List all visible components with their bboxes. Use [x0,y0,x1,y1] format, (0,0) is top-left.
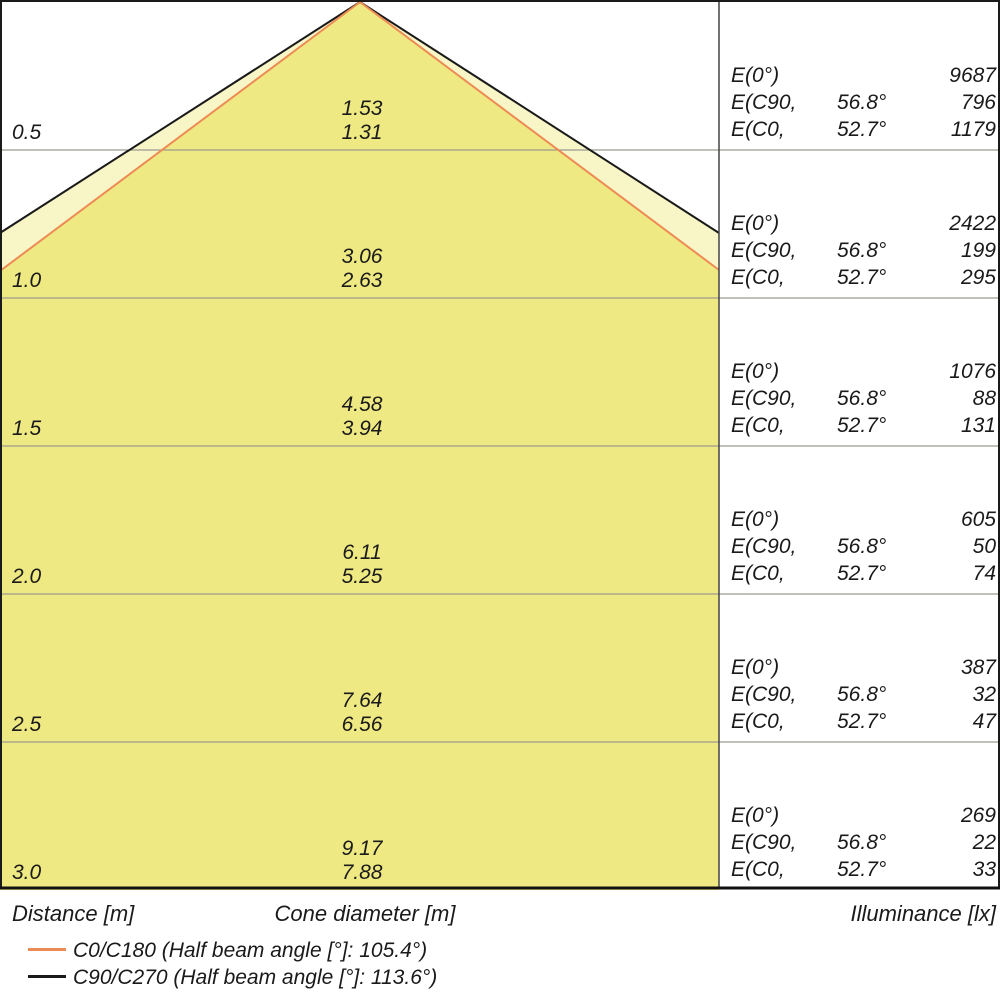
distance-label: 1.5 [12,417,41,441]
e0-value: 2422 [949,210,996,237]
cone-diameter-values: 3.06 2.63 [302,245,422,293]
cone-diameter-values: 7.64 6.56 [302,689,422,737]
distance-label: 1.0 [12,269,41,293]
e0-row: E(0°) 269 [731,802,996,829]
e0-value: 269 [961,802,996,829]
ec90-row: E(C90, 56.8° 32 [731,681,996,708]
e0-row: E(0°) 1076 [731,358,996,385]
ec0-label: E(C0, [731,856,837,883]
ec90-value: 88 [973,385,996,412]
e0-angle [837,506,961,533]
e0-value: 1076 [949,358,996,385]
e0-row: E(0°) 9687 [731,62,996,89]
ec0-value: 295 [961,264,996,291]
ec90-angle: 56.8° [837,829,973,856]
ec0-label: E(C0, [731,264,837,291]
illuminance-cell: E(0°) 2422 E(C90, 56.8° 199 E(C0, 52.7° … [731,210,996,291]
ec90-value: 199 [961,237,996,264]
illuminance-cell: E(0°) 9687 E(C90, 56.8° 796 E(C0, 52.7° … [731,62,996,143]
ec90-value: 796 [961,89,996,116]
ec90-value: 50 [973,533,996,560]
ec90-angle: 56.8° [837,533,973,560]
ec0-row: E(C0, 52.7° 47 [731,708,996,735]
e0-value: 387 [961,654,996,681]
e0-angle [837,210,949,237]
e0-label: E(0°) [731,802,837,829]
ec90-angle: 56.8° [837,89,961,116]
ec90-label: E(C90, [731,237,837,264]
ec0-row: E(C0, 52.7° 1179 [731,116,996,143]
ec0-value: 47 [973,708,996,735]
ec0-angle: 52.7° [837,116,951,143]
ec90-label: E(C90, [731,533,837,560]
cone-diameter-c90-value: 6.11 [302,541,422,565]
illuminance-cell: E(0°) 1076 E(C90, 56.8° 88 E(C0, 52.7° 1… [731,358,996,439]
e0-value: 605 [961,506,996,533]
distance-label: 2.0 [12,565,41,589]
e0-label: E(0°) [731,62,837,89]
cone-diameter-c0-value: 3.94 [302,417,422,441]
e0-row: E(0°) 605 [731,506,996,533]
cone-diameter-axis-label: Cone diameter [m] [240,901,490,927]
ec0-row: E(C0, 52.7° 131 [731,412,996,439]
ec90-label: E(C90, [731,385,837,412]
ec90-angle: 56.8° [837,385,973,412]
cone-diameter-values: 9.17 7.88 [302,837,422,885]
ec0-label: E(C0, [731,116,837,143]
ec90-label: E(C90, [731,89,837,116]
ec0-row: E(C0, 52.7° 295 [731,264,996,291]
ec0-angle: 52.7° [837,264,961,291]
cone-diameter-values: 4.58 3.94 [302,393,422,441]
c0-legend-line [28,948,66,951]
ec90-label: E(C90, [731,681,837,708]
ec90-row: E(C90, 56.8° 199 [731,237,996,264]
ec0-angle: 52.7° [837,560,973,587]
ec0-label: E(C0, [731,560,837,587]
cone-diameter-values: 6.11 5.25 [302,541,422,589]
distance-axis-label: Distance [m] [12,901,134,927]
ec0-angle: 52.7° [837,856,973,883]
ec0-value: 131 [961,412,996,439]
distance-label: 2.5 [12,713,41,737]
e0-label: E(0°) [731,358,837,385]
e0-label: E(0°) [731,506,837,533]
e0-angle [837,654,961,681]
ec0-label: E(C0, [731,412,837,439]
cone-diameter-c0-value: 6.56 [302,713,422,737]
ec0-row: E(C0, 52.7° 74 [731,560,996,587]
e0-value: 9687 [949,62,996,89]
ec90-row: E(C90, 56.8° 50 [731,533,996,560]
e0-angle [837,358,949,385]
e0-label: E(0°) [731,210,837,237]
ec90-label: E(C90, [731,829,837,856]
c90-legend-label: C90/C270 (Half beam angle [°]: 113.6°) [73,966,437,990]
cone-diameter-c0-value: 1.31 [302,121,422,145]
cone-diameter-c90-value: 3.06 [302,245,422,269]
ec90-row: E(C90, 56.8° 796 [731,89,996,116]
c90-legend-line [28,975,66,978]
cone-diameter-c0-value: 5.25 [302,565,422,589]
ec0-row: E(C0, 52.7° 33 [731,856,996,883]
ec0-angle: 52.7° [837,412,961,439]
cone-diameter-c0-value: 2.63 [302,269,422,293]
cone-diameter-c0-value: 7.88 [302,861,422,885]
ec0-label: E(C0, [731,708,837,735]
cone-diameter-c90-value: 7.64 [302,689,422,713]
distance-label: 3.0 [12,861,41,885]
ec0-value: 1179 [951,116,996,143]
ec90-row: E(C90, 56.8° 22 [731,829,996,856]
e0-angle [837,62,949,89]
ec0-value: 33 [973,856,996,883]
ec0-angle: 52.7° [837,708,973,735]
illuminance-axis-label: Illuminance [lx] [850,901,996,927]
ec0-value: 74 [973,560,996,587]
cone-diagram: 0.5 1.53 1.31 E(0°) 9687 E(C90, 56.8° 79… [0,0,1000,1000]
ec90-angle: 56.8° [837,237,961,264]
cone-diameter-c90-value: 1.53 [302,97,422,121]
e0-row: E(0°) 2422 [731,210,996,237]
illuminance-cell: E(0°) 387 E(C90, 56.8° 32 E(C0, 52.7° 47 [731,654,996,735]
cone-diameter-values: 1.53 1.31 [302,97,422,145]
illuminance-cell: E(0°) 605 E(C90, 56.8° 50 E(C0, 52.7° 74 [731,506,996,587]
cone-diameter-c90-value: 4.58 [302,393,422,417]
e0-angle [837,802,961,829]
e0-row: E(0°) 387 [731,654,996,681]
cone-diameter-c90-value: 9.17 [302,837,422,861]
e0-label: E(0°) [731,654,837,681]
illuminance-cell: E(0°) 269 E(C90, 56.8° 22 E(C0, 52.7° 33 [731,802,996,883]
ec90-value: 32 [973,681,996,708]
c0-legend-label: C0/C180 (Half beam angle [°]: 105.4°) [73,939,427,963]
ec90-row: E(C90, 56.8° 88 [731,385,996,412]
ec90-angle: 56.8° [837,681,973,708]
distance-label: 0.5 [12,121,41,145]
ec90-value: 22 [973,829,996,856]
